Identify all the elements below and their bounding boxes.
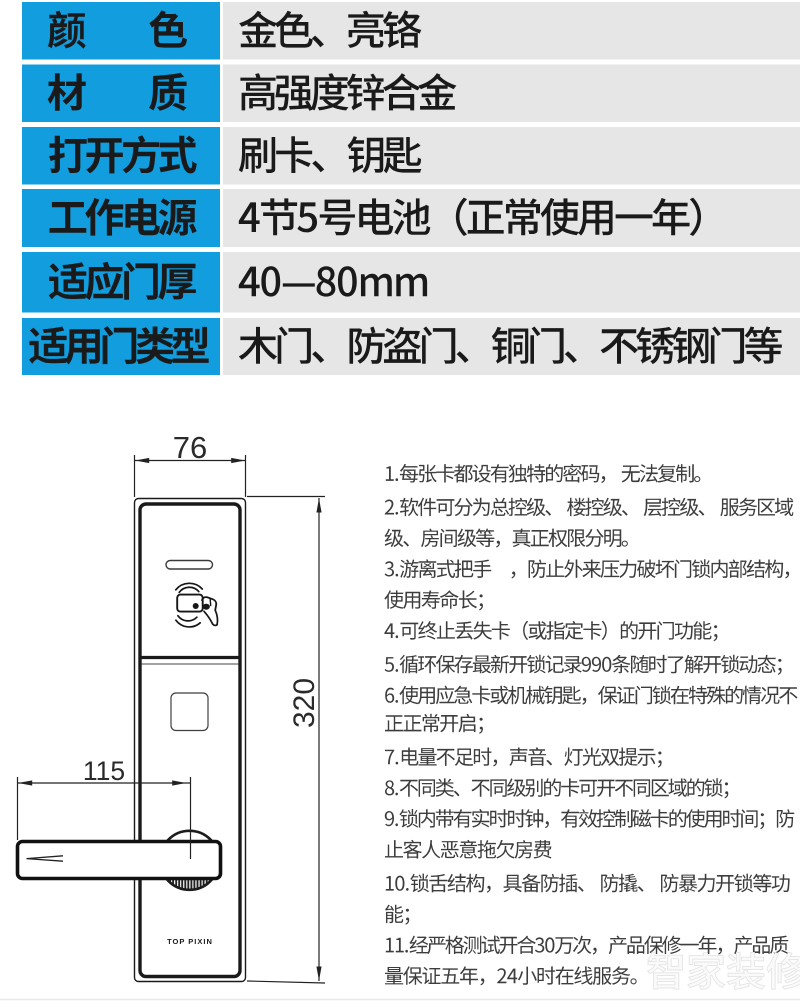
svg-text:115: 115 [83,756,125,786]
svg-text:TOP PIXIN: TOP PIXIN [167,937,213,946]
svg-text:320: 320 [288,678,321,728]
svg-text:76: 76 [173,430,207,465]
